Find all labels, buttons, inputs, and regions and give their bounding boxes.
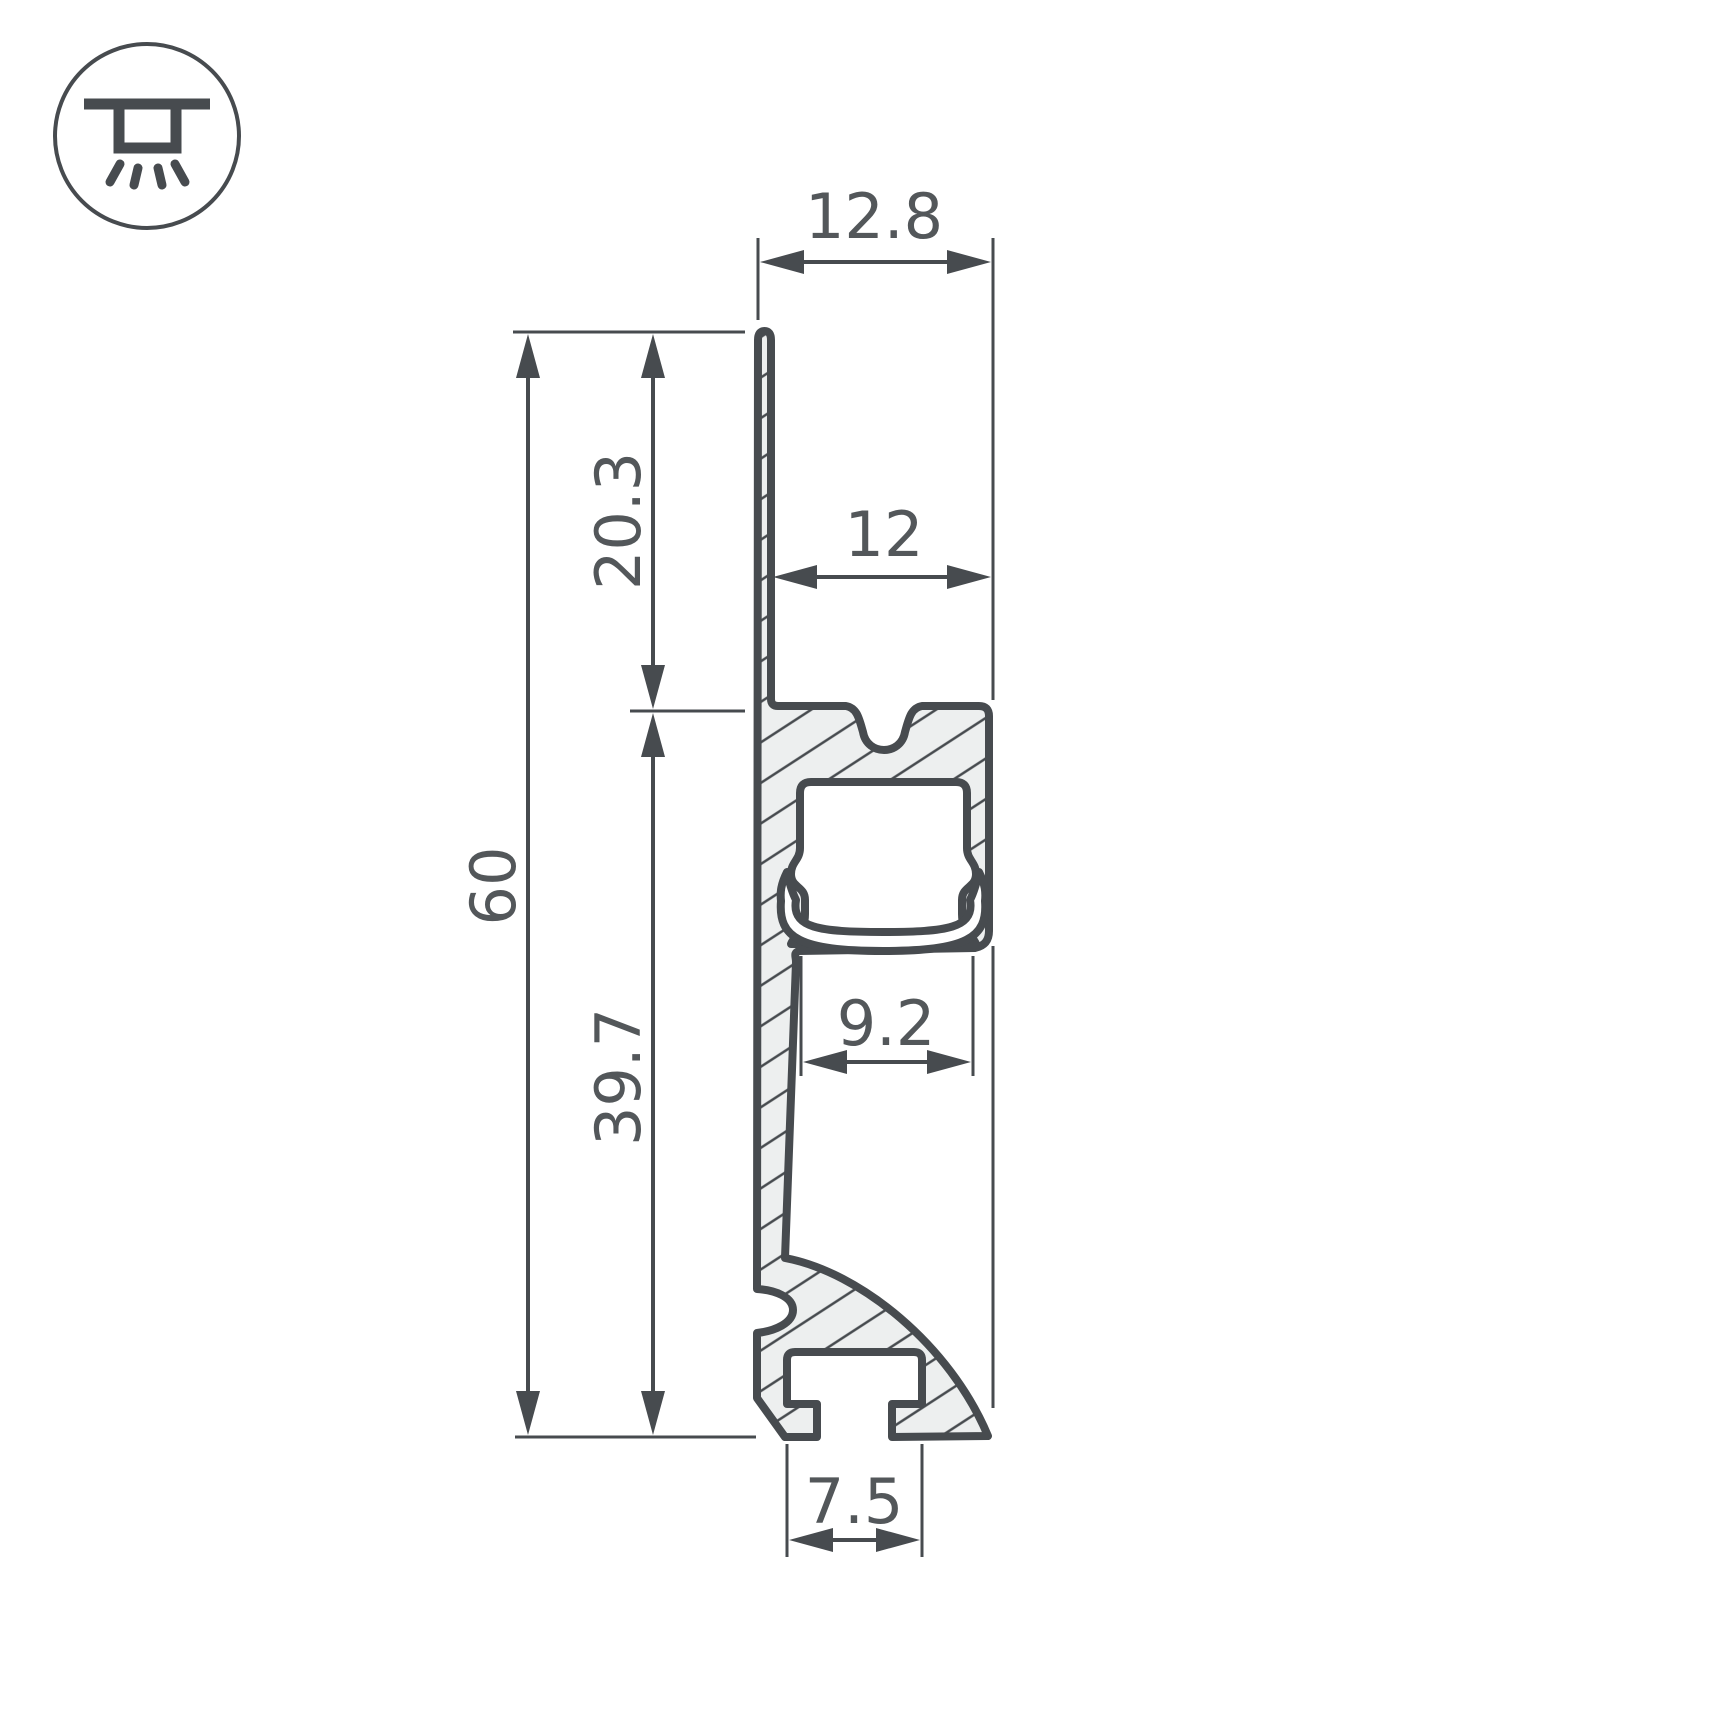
dimension-channel-width: 9.2: [801, 956, 973, 1076]
arrowhead-icon: [641, 334, 665, 378]
dimension-flange-width: 12: [773, 498, 991, 589]
arrowhead-icon: [760, 250, 804, 274]
dimension-label-total-height: 60: [457, 847, 530, 926]
arrowhead-icon: [641, 665, 665, 709]
arrowhead-icon: [641, 713, 665, 757]
dimension-label-channel-width: 9.2: [837, 987, 936, 1060]
dimension-body-height: 39.7: [582, 713, 665, 1435]
arrowhead-icon: [516, 1391, 540, 1435]
light-rays-icon: [110, 164, 185, 185]
arrowhead-icon: [947, 565, 991, 589]
profile-section: [757, 331, 993, 1437]
diffuser-cover: [781, 872, 986, 951]
dimension-label-body-height: 39.7: [582, 1008, 655, 1146]
technical-drawing-canvas: 12.8 12 9.2 7.5 20.3: [0, 0, 1720, 1720]
arrowhead-icon: [516, 334, 540, 378]
profile-drawing: 12.8 12 9.2 7.5 20.3: [0, 0, 1720, 1720]
recessed-box: [119, 104, 176, 148]
mount-type-icon: [55, 44, 239, 228]
arrowhead-icon: [641, 1391, 665, 1435]
dimension-top-width: 12.8: [758, 180, 993, 700]
dimension-label-top-width: 12.8: [805, 180, 943, 253]
arrowhead-icon: [947, 250, 991, 274]
dimension-label-slot-width: 7.5: [805, 1465, 904, 1538]
arrowhead-icon: [773, 565, 817, 589]
icon-circle: [55, 44, 239, 228]
dimension-label-flange-width: 12: [845, 498, 924, 571]
dimension-total-height: 60: [457, 334, 540, 1435]
dimension-fin-height: 20.3: [582, 334, 665, 709]
dimension-slot-width: 7.5: [787, 1444, 922, 1557]
dimension-label-fin-height: 20.3: [582, 452, 655, 590]
